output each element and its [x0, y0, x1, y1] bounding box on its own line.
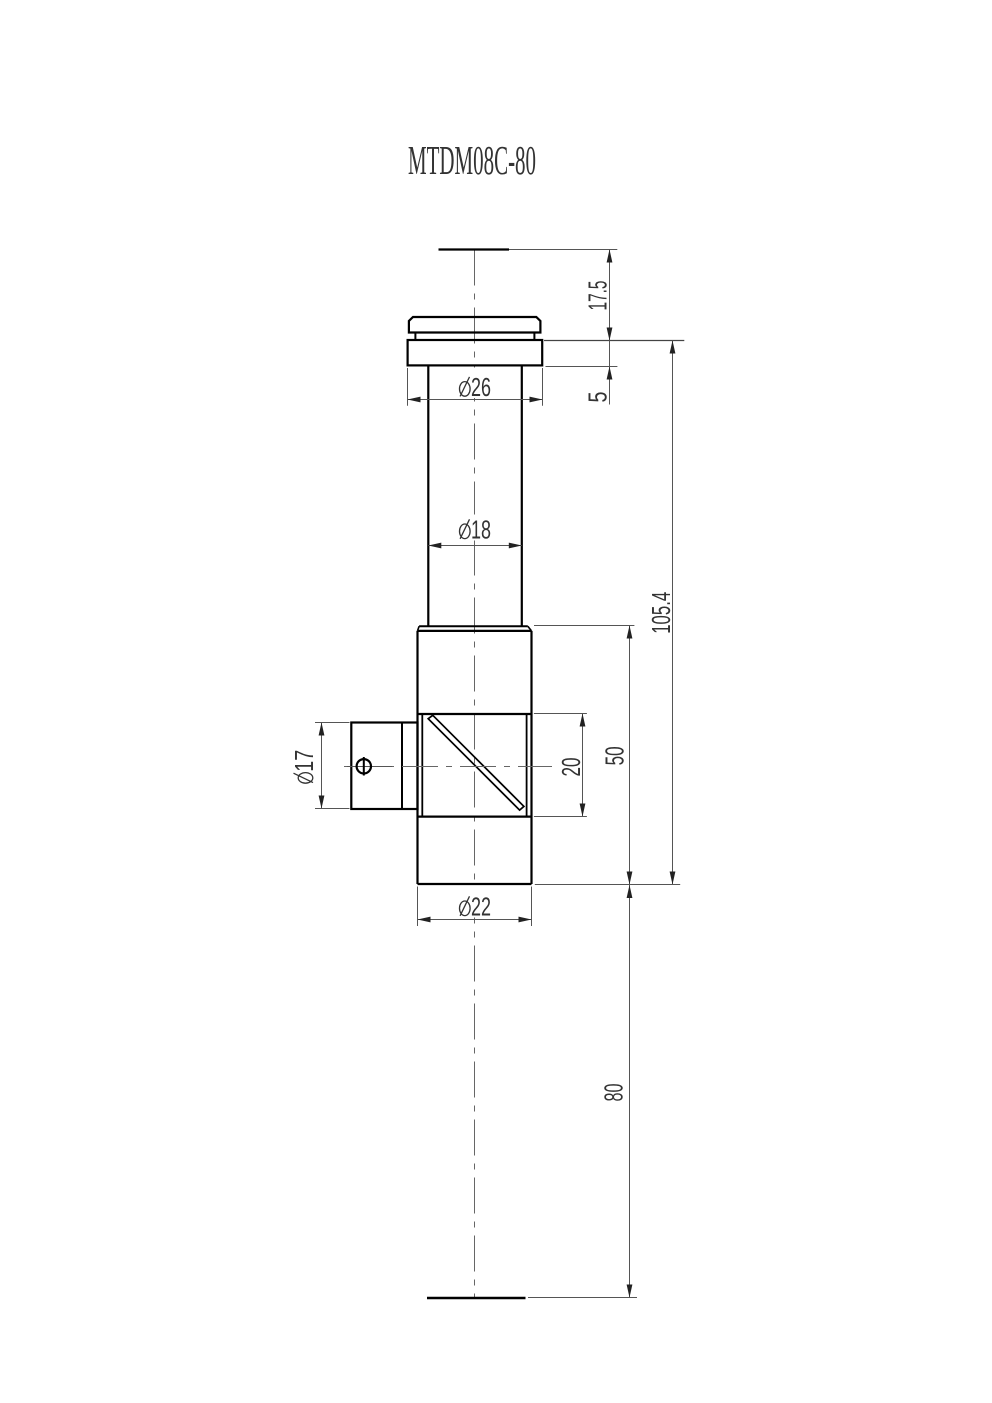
svg-text:105.4: 105.4	[648, 592, 676, 634]
svg-text:17: 17	[291, 750, 319, 772]
svg-text:5: 5	[585, 392, 613, 403]
svg-text:MTDM08C-80: MTDM08C-80	[408, 137, 536, 183]
svg-text:20: 20	[558, 758, 586, 777]
svg-text:22: 22	[471, 894, 491, 922]
svg-text:50: 50	[602, 746, 630, 765]
svg-text:18: 18	[471, 517, 491, 545]
svg-text:80: 80	[601, 1084, 629, 1102]
svg-text:17.5: 17.5	[585, 281, 613, 311]
svg-text:26: 26	[471, 374, 491, 402]
